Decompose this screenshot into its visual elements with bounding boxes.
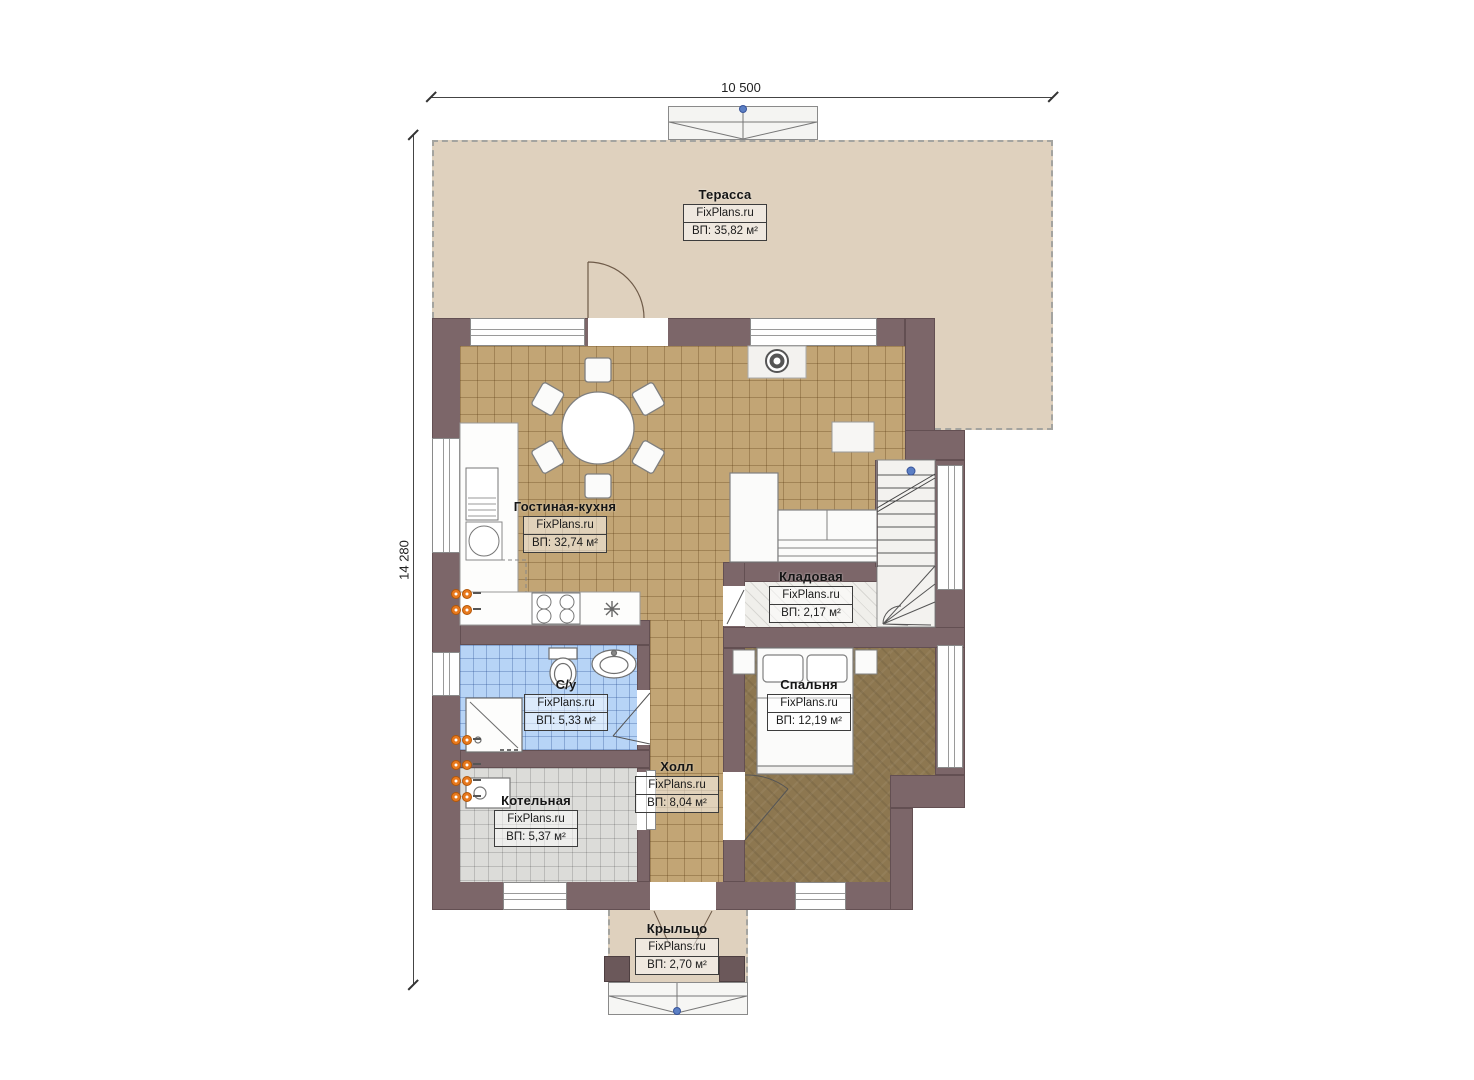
room-info-box: FixPlans.ru ВП: 35,82 м² (683, 204, 767, 241)
room-brand: FixPlans.ru (525, 695, 607, 713)
chair (585, 474, 611, 498)
room-label-bedroom: Спальня FixPlans.ru ВП: 12,19 м² (724, 678, 894, 731)
room-name: Терасса (640, 188, 810, 202)
floor-plan: 10 500 14 280 (0, 0, 1474, 1080)
room-info-box: FixPlans.ru ВП: 12,19 м² (767, 694, 851, 731)
kitchen-sink-icon (604, 601, 620, 617)
chair (531, 382, 565, 417)
room-brand: FixPlans.ru (770, 587, 852, 605)
room-info-box: FixPlans.ru ВП: 5,37 м² (494, 810, 578, 847)
chair (585, 358, 611, 382)
plan-art-layer (0, 0, 1474, 1080)
room-info-box: FixPlans.ru ВП: 5,33 м² (524, 694, 608, 731)
room-label-terrace: Терасса FixPlans.ru ВП: 35,82 м² (640, 188, 810, 241)
room-label-porch: Крыльцо FixPlans.ru ВП: 2,70 м² (592, 922, 762, 975)
side-table (832, 422, 874, 452)
dimension-width-label: 10 500 (721, 80, 761, 95)
stove-icon (532, 593, 580, 624)
chair (631, 382, 665, 417)
room-name: С/у (481, 678, 651, 692)
dimension-height-label: 14 280 (397, 540, 412, 580)
room-name: Кладовая (726, 570, 896, 584)
room-area: ВП: 35,82 м² (684, 223, 766, 240)
room-name: Холл (592, 760, 762, 774)
room-label-storage: Кладовая FixPlans.ru ВП: 2,17 м² (726, 570, 896, 623)
chair (531, 440, 565, 475)
room-name: Спальня (724, 678, 894, 692)
room-area: ВП: 2,17 м² (770, 605, 852, 622)
fireplace-icon (748, 346, 806, 378)
room-area: ВП: 2,70 м² (636, 957, 718, 974)
room-brand: FixPlans.ru (524, 517, 606, 535)
room-label-living-kitchen: Гостиная-кухня FixPlans.ru ВП: 32,74 м² (480, 500, 650, 553)
room-label-boiler-room: Котельная FixPlans.ru ВП: 5,37 м² (451, 794, 621, 847)
washbasin-icon (592, 650, 636, 678)
room-area: ВП: 32,74 м² (524, 535, 606, 552)
room-info-box: FixPlans.ru ВП: 8,04 м² (635, 776, 719, 813)
room-area: ВП: 5,37 м² (495, 829, 577, 846)
chair (631, 440, 665, 475)
roof-window-lines (669, 106, 817, 140)
dining-table (531, 358, 665, 498)
radiator-icon (452, 761, 482, 770)
room-name: Котельная (451, 794, 621, 808)
room-area: ВП: 8,04 м² (636, 795, 718, 812)
room-label-bathroom: С/у FixPlans.ru ВП: 5,33 м² (481, 678, 651, 731)
room-brand: FixPlans.ru (684, 205, 766, 223)
room-brand: FixPlans.ru (636, 777, 718, 795)
room-info-box: FixPlans.ru ВП: 32,74 м² (523, 516, 607, 553)
room-brand: FixPlans.ru (636, 939, 718, 957)
room-brand: FixPlans.ru (768, 695, 850, 713)
stairs-marker-dot (907, 467, 915, 475)
canopy-lines (609, 983, 747, 1015)
room-info-box: FixPlans.ru ВП: 2,17 м² (769, 586, 853, 623)
sofa (730, 473, 877, 562)
room-area: ВП: 12,19 м² (768, 713, 850, 730)
room-name: Крыльцо (592, 922, 762, 936)
room-info-box: FixPlans.ru ВП: 2,70 м² (635, 938, 719, 975)
terrace-door-swing (588, 262, 644, 318)
room-brand: FixPlans.ru (495, 811, 577, 829)
room-name: Гостиная-кухня (480, 500, 650, 514)
room-area: ВП: 5,33 м² (525, 713, 607, 730)
